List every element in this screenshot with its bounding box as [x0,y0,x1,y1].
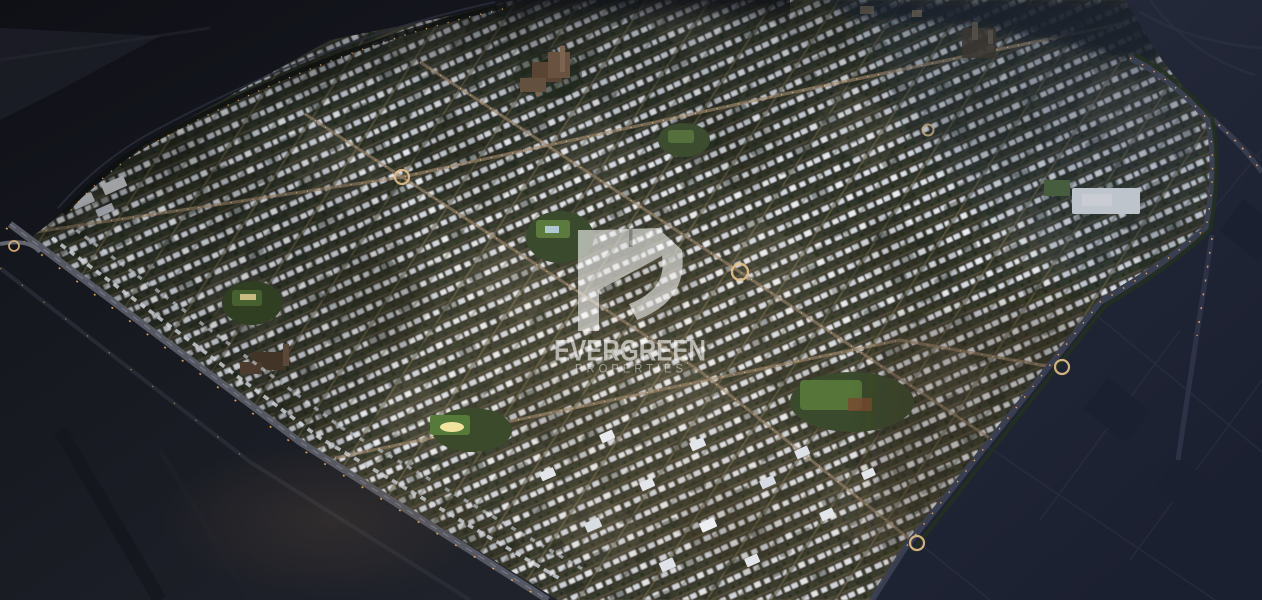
svg-text:PROPERTIES: PROPERTIES [575,364,687,376]
